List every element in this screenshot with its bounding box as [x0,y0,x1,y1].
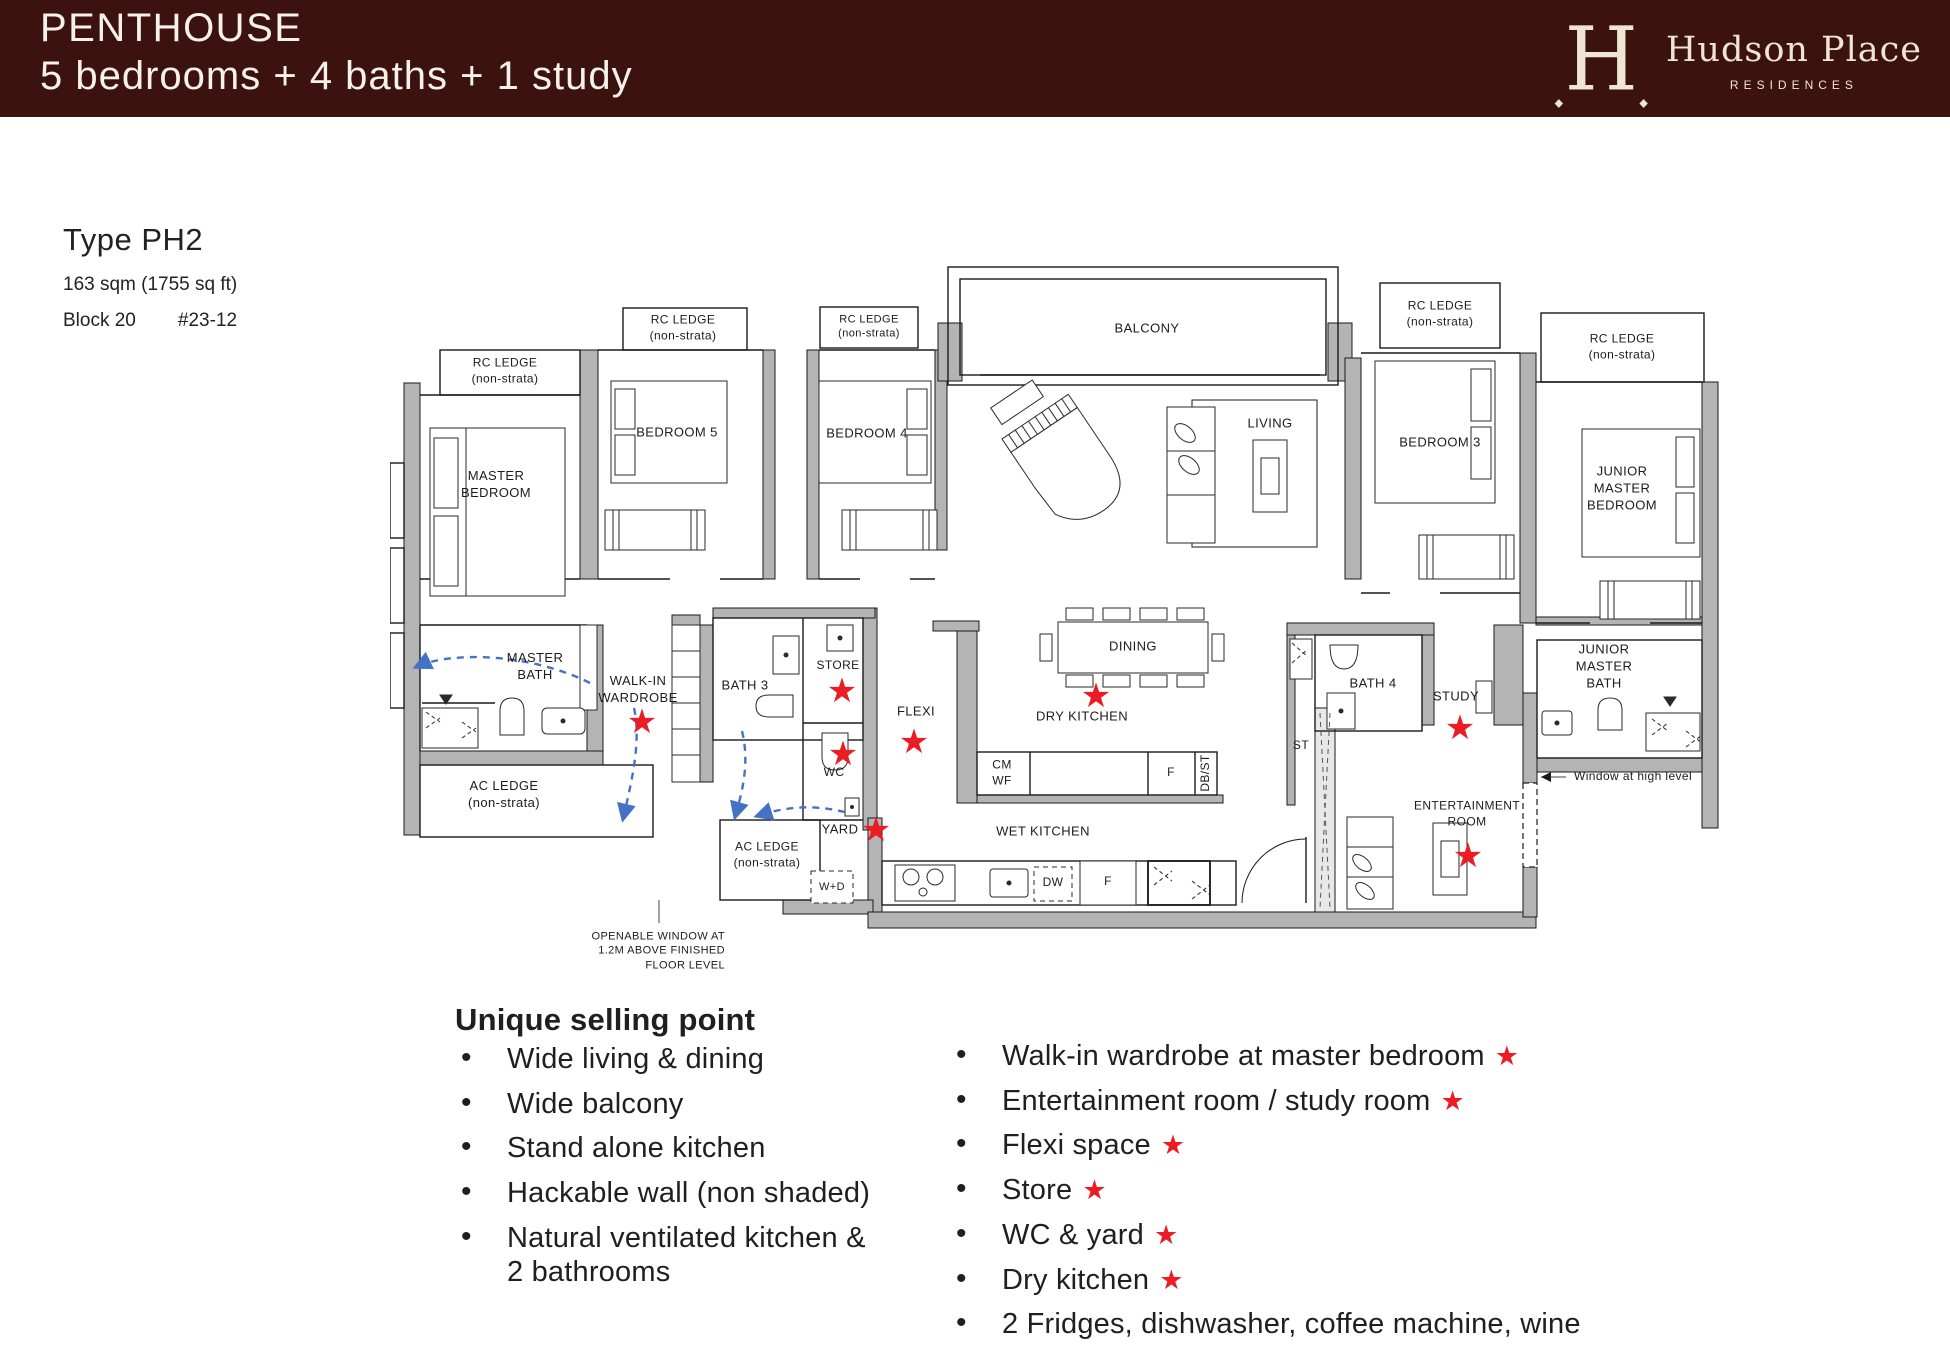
unit-block: Block 20 [63,310,136,331]
store-wc-fixtures [822,625,859,816]
high-window [1523,783,1537,867]
junior-bath-fixtures [1542,697,1702,751]
usp-item: Entertainment room / study room★ [950,1084,1770,1118]
brand-monogram-icon: H ◆ ◆ [1559,10,1644,107]
usp-item: Dry kitchen★ [950,1263,1770,1297]
unit-block-line: Block 20#23-12 [63,310,237,332]
usp-list-right: Walk-in wardrobe at master bedroom★ Ente… [950,1039,1770,1352]
usp-item: Store★ [950,1173,1770,1207]
usp-star-icon: ★ [1082,1175,1106,1205]
usp-heading: Unique selling point [455,1002,755,1038]
page-subtitle: 5 bedrooms + 4 baths + 1 study [40,51,633,101]
brand-text: Hudson Place RESIDENCES [1666,30,1922,92]
unit-area: 163 sqm (1755 sq ft) [63,274,237,296]
usp-item: Flexi space★ [950,1128,1770,1162]
diamond-icon: ◆ [1555,55,1563,152]
bed-4 [819,381,937,550]
unit-info: Type PH2 163 sqm (1755 sq ft) Block 20#2… [63,222,237,332]
usp-item: WC & yard★ [950,1218,1770,1252]
diamond-icon: ◆ [1639,55,1647,152]
brand-name: Hudson Place [1666,30,1922,70]
usp-item: Walk-in wardrobe at master bedroom★ [950,1039,1770,1073]
usp-star-icon: ★ [1154,1220,1178,1250]
usp-star-icon: ★ [1440,1086,1464,1116]
bed-3 [1375,361,1514,579]
header-titles: PENTHOUSE 5 bedrooms + 4 baths + 1 study [40,5,633,101]
dining-table [1040,608,1224,687]
page-title: PENTHOUSE [40,5,633,51]
brand-tagline: RESIDENCES [1730,78,1858,92]
usp-star-icon: ★ [1159,1265,1183,1295]
usp-star-icon: ★ [1161,1130,1185,1160]
piano [984,368,1133,535]
sofa [1167,407,1215,543]
usp-item: 2 Fridges, dishwasher, coffee machine, w… [950,1307,1770,1341]
circulation-arrows [416,657,845,819]
bed-junior [1582,429,1700,619]
unit-type: Type PH2 [63,222,237,258]
header-bar: PENTHOUSE 5 bedrooms + 4 baths + 1 study… [0,0,1950,117]
master-bath-fixtures [422,695,585,748]
usp-star-icon: ★ [1495,1041,1519,1071]
bed-5 [605,381,727,550]
brand-logo: H ◆ ◆ Hudson Place RESIDENCES [1559,6,1922,111]
study-desk [1476,681,1492,713]
unit-number: #23-12 [178,310,237,331]
floorplan: RC LEDGE (non-strata) RC LEDGE (non-stra… [390,263,1740,993]
entertainment-furniture [1347,817,1467,909]
tv-console-living [1253,440,1287,512]
floorplan-drawing [390,263,1740,993]
bath3-fixtures [756,636,799,717]
bed-master [430,428,565,596]
